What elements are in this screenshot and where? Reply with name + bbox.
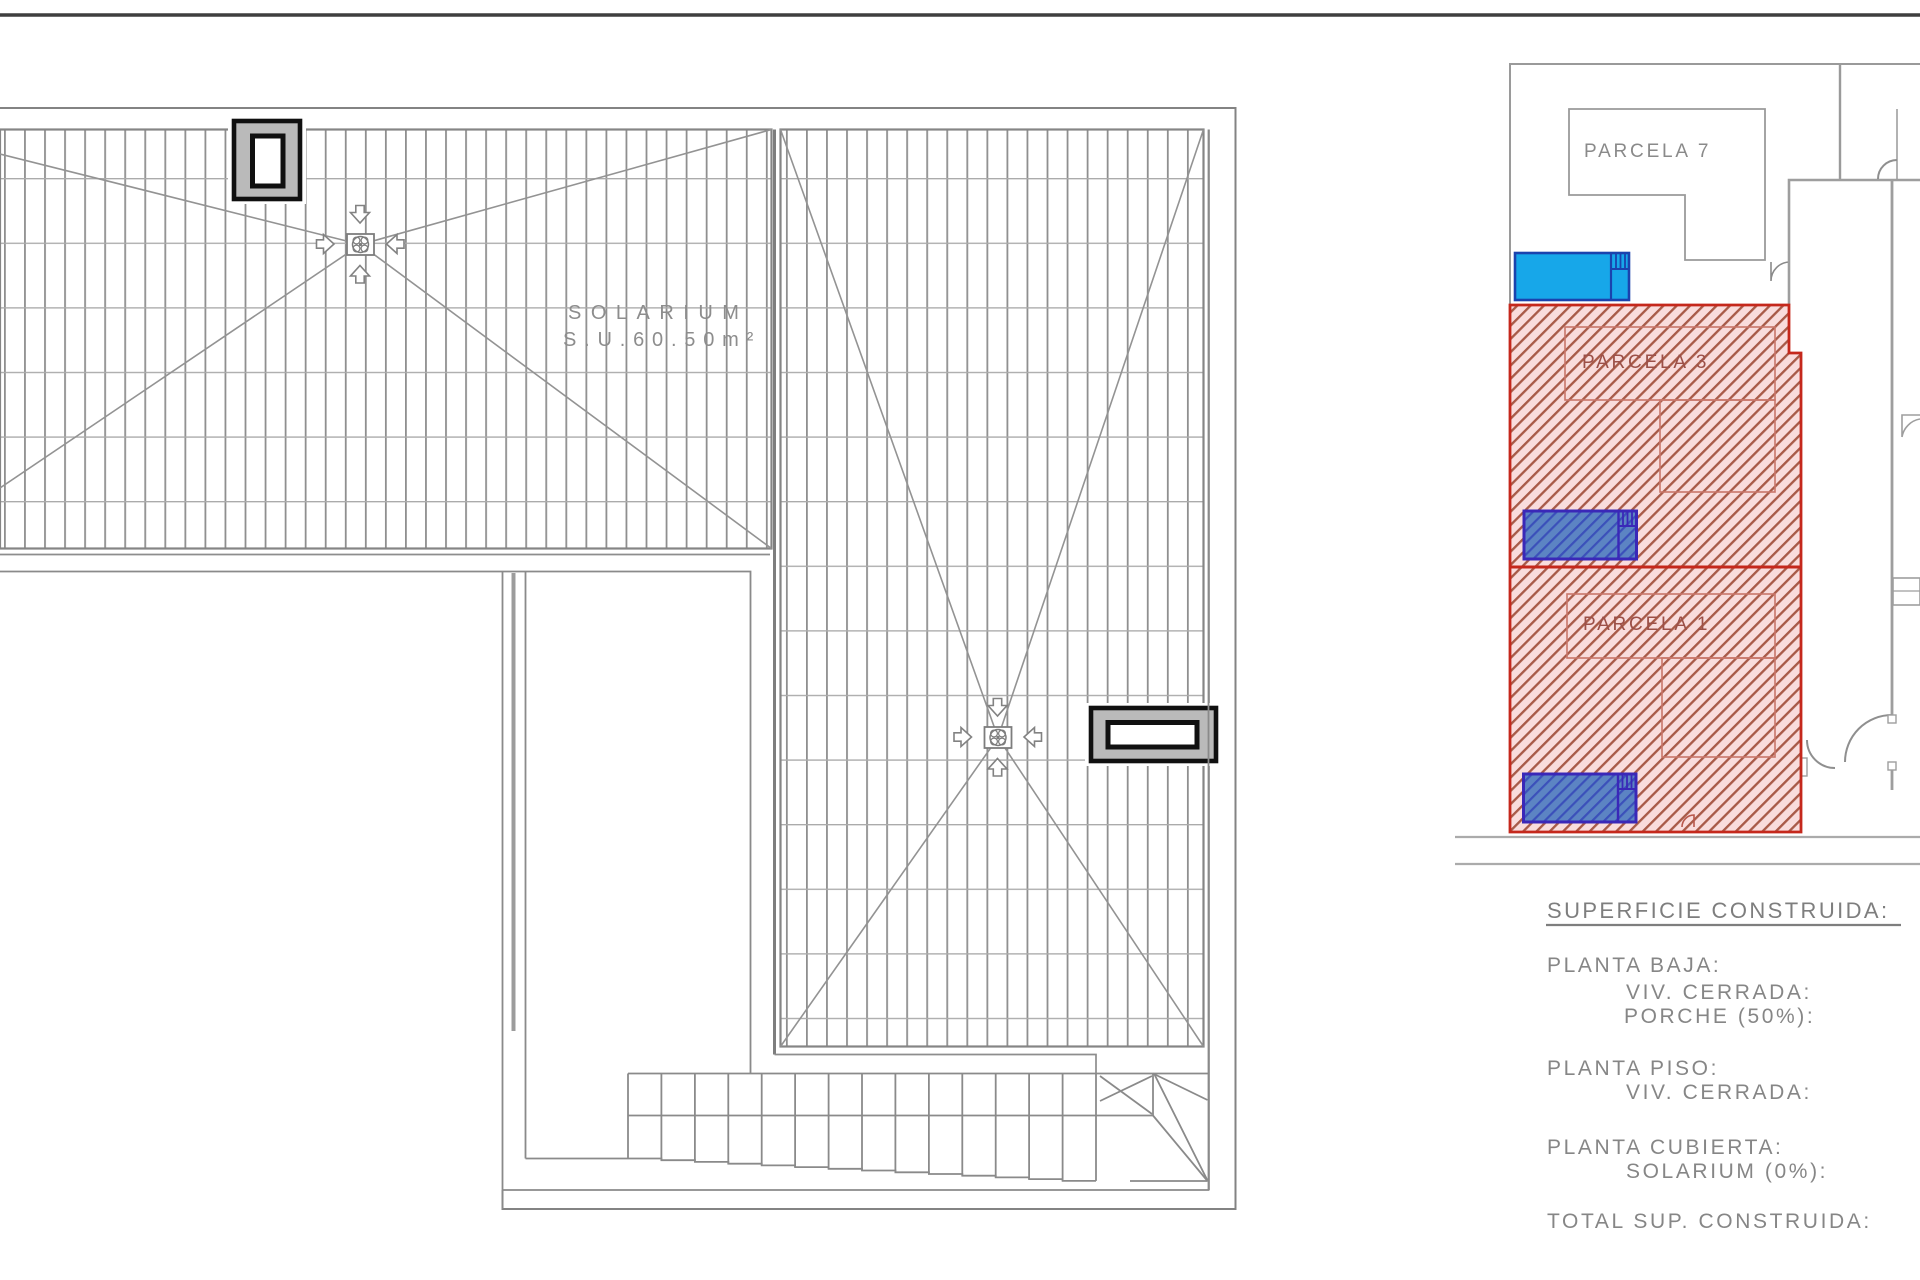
svg-text:PORCHE (50%):: PORCHE (50%): xyxy=(1624,1005,1815,1028)
svg-text:PARCELA 3: PARCELA 3 xyxy=(1582,352,1709,373)
svg-text:TOTAL SUP. CONSTRUIDA:: TOTAL SUP. CONSTRUIDA: xyxy=(1547,1210,1872,1233)
svg-text:VIV. CERRADA:: VIV. CERRADA: xyxy=(1626,981,1812,1004)
svg-text:PARCELA 1: PARCELA 1 xyxy=(1583,614,1710,635)
svg-text:SOLARIUM (0%):: SOLARIUM (0%): xyxy=(1626,1160,1828,1183)
svg-text:SUPERFICIE CONSTRUIDA:: SUPERFICIE CONSTRUIDA: xyxy=(1547,898,1890,923)
svg-text:PARCELA 7: PARCELA 7 xyxy=(1584,141,1711,162)
svg-text:SOLARIUM: SOLARIUM xyxy=(568,302,748,324)
svg-text:PLANTA BAJA:: PLANTA BAJA: xyxy=(1547,954,1721,977)
svg-text:PLANTA CUBIERTA:: PLANTA CUBIERTA: xyxy=(1547,1136,1784,1159)
svg-text:PLANTA PISO:: PLANTA PISO: xyxy=(1547,1057,1719,1080)
svg-text:S.U.60.50m²: S.U.60.50m² xyxy=(563,329,761,351)
svg-text:VIV. CERRADA:: VIV. CERRADA: xyxy=(1626,1081,1812,1104)
